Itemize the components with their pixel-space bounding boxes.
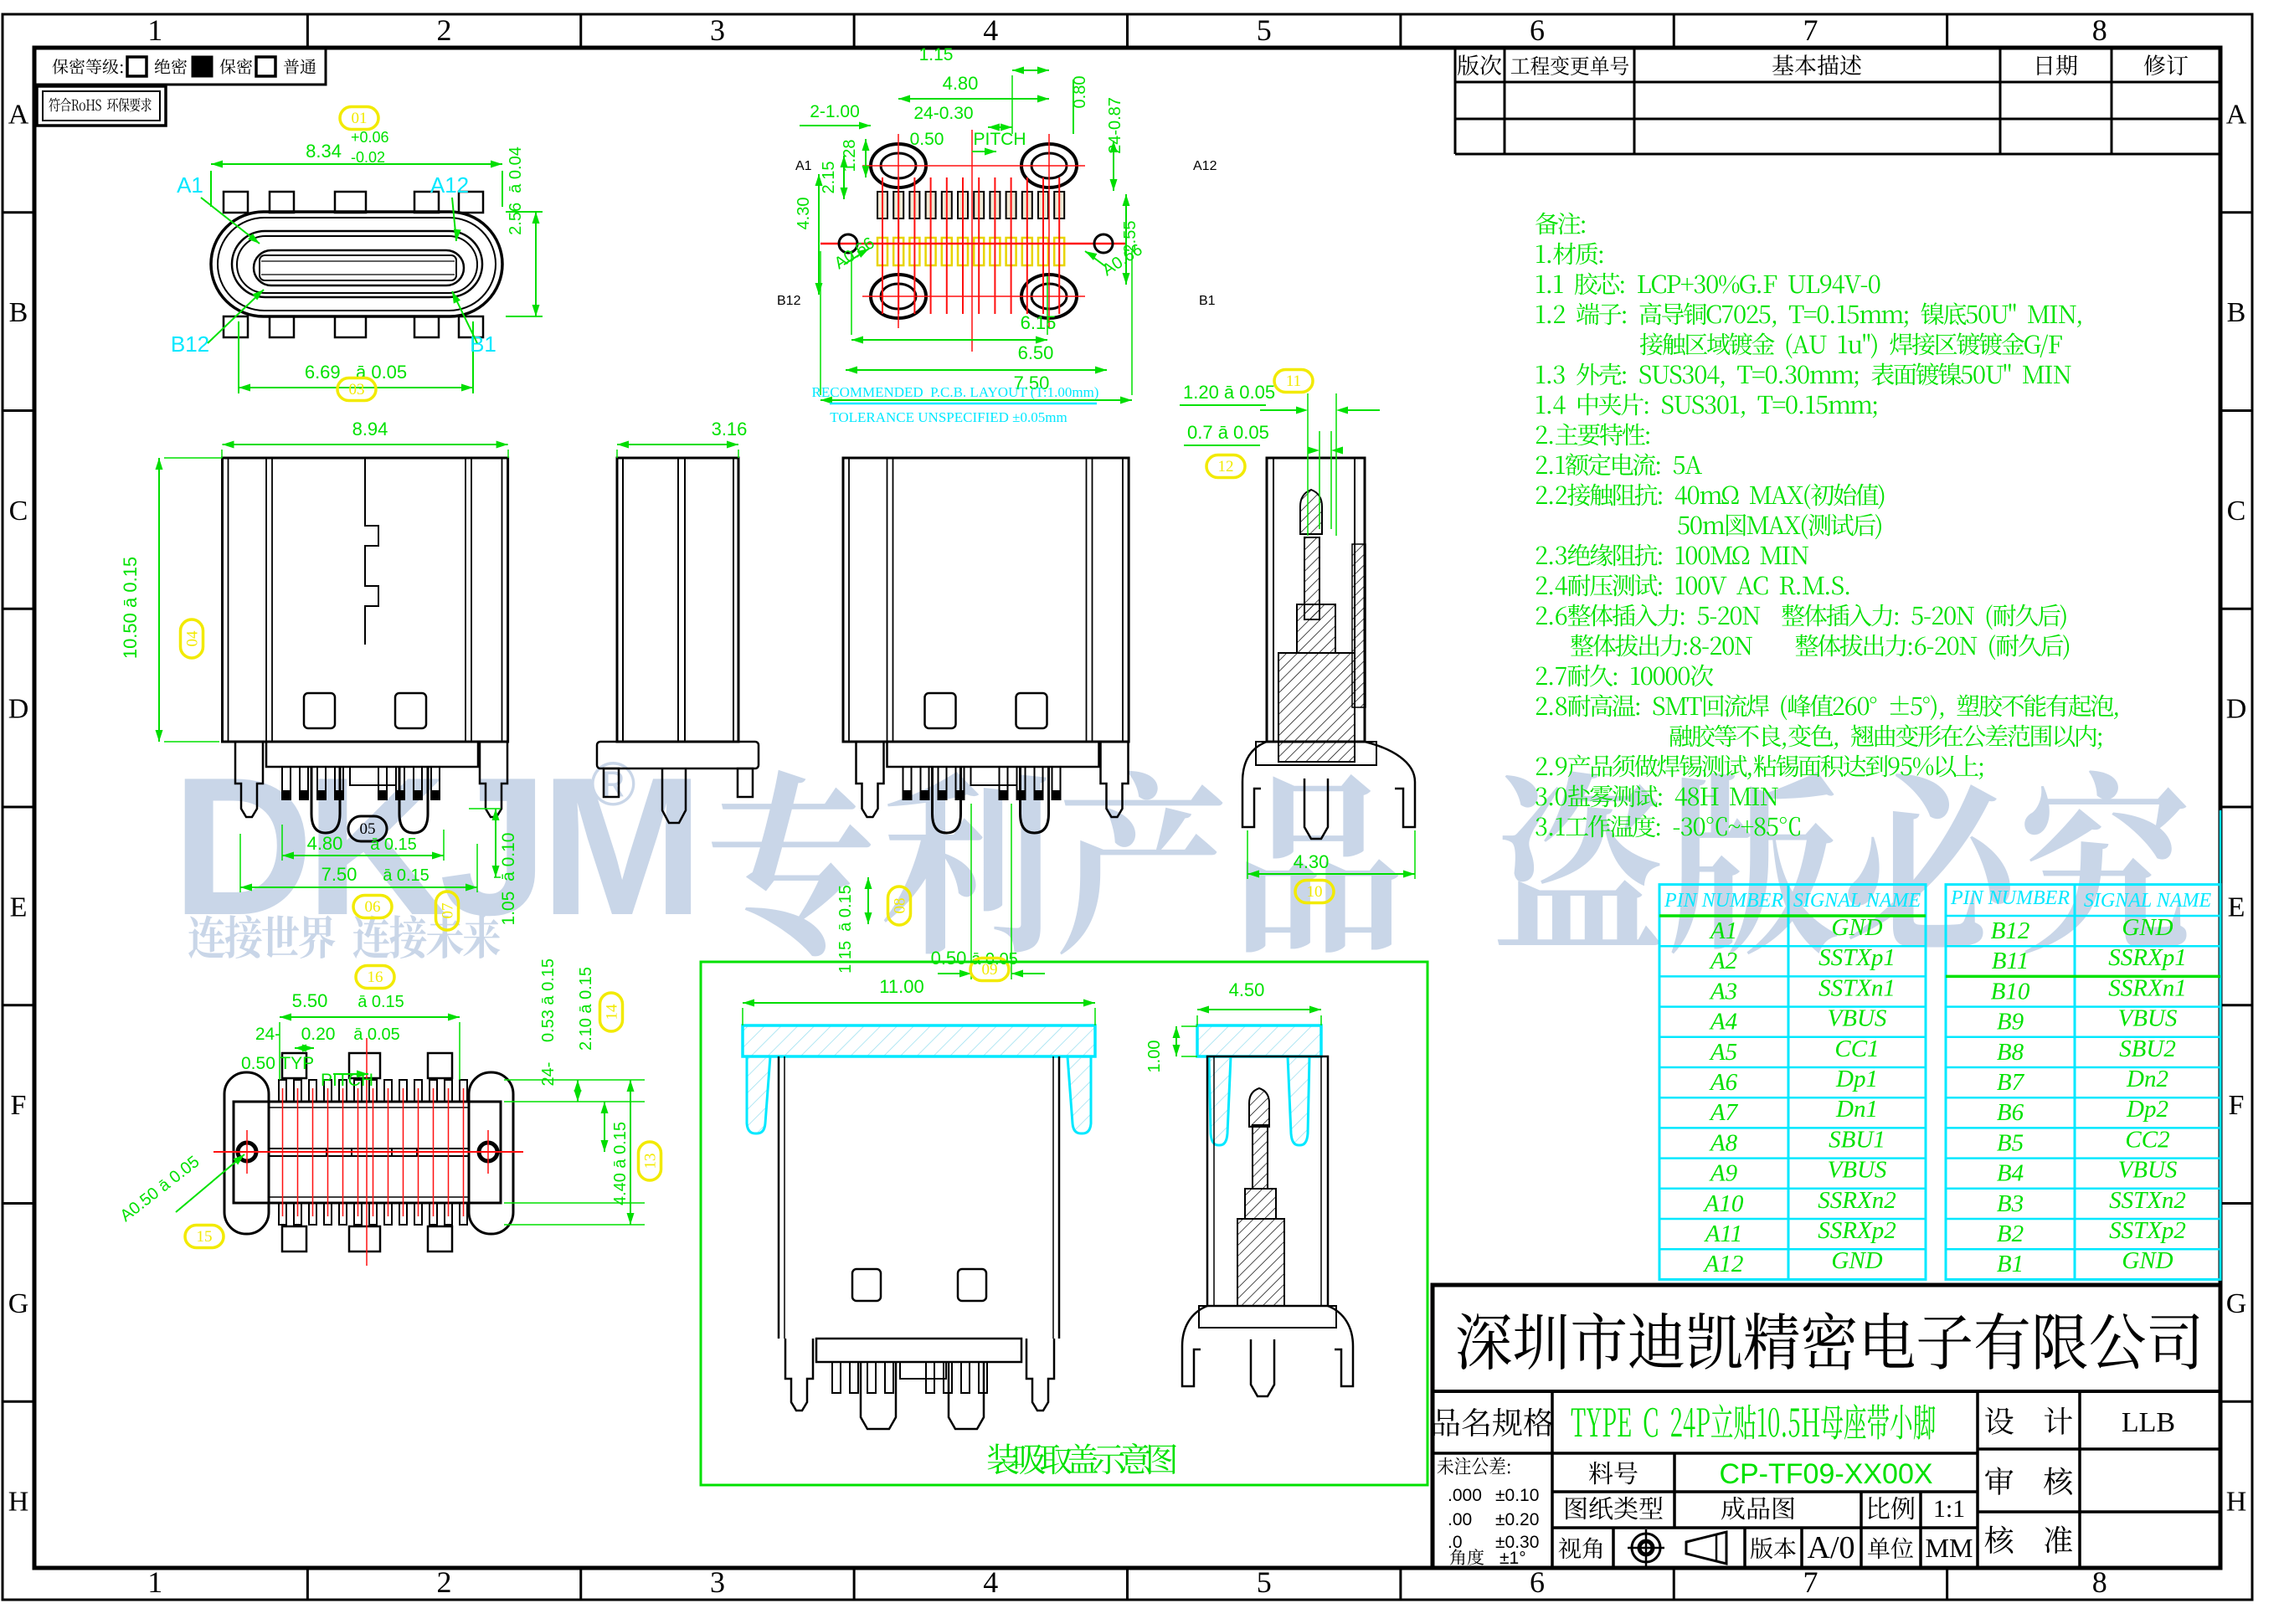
svg-text:A9: A9 [1709,1160,1738,1187]
svg-text:7: 7 [1803,1565,1818,1599]
svg-text:8: 8 [2092,1565,2107,1599]
svg-text:CC2: CC2 [2125,1126,2169,1153]
svg-text:±0.10: ±0.10 [1495,1486,1539,1505]
svg-text:A3: A3 [1709,978,1737,1005]
svg-text:SSRXp1: SSRXp1 [2108,944,2186,971]
svg-text:E: E [10,892,28,922]
svg-text:B8: B8 [1997,1039,2024,1066]
svg-text:12: 12 [1218,458,1234,475]
svg-text:VBUS: VBUS [1828,1005,1887,1032]
svg-text:RECOMMENDED P.C.B. LAYOUT (T:: RECOMMENDED P.C.B. LAYOUT (T:1.00mm) [812,384,1099,400]
svg-text:GND: GND [2122,1247,2173,1274]
svg-text:3: 3 [710,13,725,47]
svg-text:4: 4 [983,1565,998,1599]
svg-text:A5: A5 [1709,1039,1737,1066]
svg-text:24-0.30: 24-0.30 [913,104,973,123]
svg-text:5.50: 5.50 [292,990,328,1011]
svg-text:SIGNAL NAME: SIGNAL NAME [2084,890,2212,912]
svg-text:0.53 ā 0.15: 0.53 ā 0.15 [539,958,558,1042]
svg-text:5: 5 [1257,1565,1272,1599]
svg-text:01: 01 [352,110,368,127]
svg-text:ā 0.15: ā 0.15 [383,866,430,885]
svg-text:6: 6 [1530,13,1545,47]
svg-text:8: 8 [2092,13,2107,47]
svg-text:±0.20: ±0.20 [1495,1510,1539,1529]
svg-text:SSRXp2: SSRXp2 [1818,1217,1896,1244]
svg-text:1.00: 1.00 [1145,1041,1164,1073]
svg-text:ā 0.05: ā 0.05 [353,1025,400,1044]
svg-text:A4: A4 [1709,1009,1737,1036]
svg-text:2.56 ā 0.04: 2.56 ā 0.04 [507,146,525,235]
svg-text:3: 3 [710,1565,725,1599]
svg-text:2: 2 [437,1565,452,1599]
svg-text:A12: A12 [1193,159,1217,173]
svg-text:A1: A1 [1709,917,1737,944]
svg-text:D: D [2226,694,2247,725]
svg-text:B: B [2227,297,2246,328]
svg-text:0.50: 0.50 [910,130,944,149]
svg-text:CP-TF09-XX00X: CP-TF09-XX00X [1719,1458,1932,1490]
svg-text:2-1.00: 2-1.00 [810,102,860,121]
svg-text:1.15 ā 0.15: 1.15 ā 0.15 [836,885,855,974]
svg-text:24-: 24- [255,1025,280,1044]
svg-text:08: 08 [892,898,909,914]
svg-text:0.50: 0.50 [931,948,967,969]
svg-text:B9: B9 [1997,1009,2024,1036]
svg-text:SSTXn2: SSTXn2 [2109,1187,2186,1214]
svg-text:MM: MM [1926,1533,1973,1563]
svg-text:4.80: 4.80 [943,73,979,94]
svg-text:10: 10 [1307,883,1323,901]
svg-text:±1°: ±1° [1500,1549,1526,1568]
svg-text:4.30: 4.30 [1294,851,1330,872]
svg-text:1:1: 1:1 [1933,1495,1965,1523]
svg-text:0.50 TYP: 0.50 TYP [241,1054,314,1073]
svg-text:0.7 ā 0.05: 0.7 ā 0.05 [1187,422,1269,443]
svg-text:04: 04 [184,630,202,647]
svg-text:2: 2 [437,13,452,47]
svg-text:TOLERANCE UNSPECIFIED ±0.05mm: TOLERANCE UNSPECIFIED ±0.05mm [830,409,1067,425]
svg-text:A1: A1 [795,159,812,173]
svg-text:A10: A10 [1703,1190,1744,1217]
svg-text:7.50: 7.50 [322,864,358,885]
svg-text:4: 4 [983,13,998,47]
svg-text:GND: GND [1831,1247,1882,1274]
svg-text:24-0.87: 24-0.87 [1106,97,1124,154]
svg-text:.0: .0 [1448,1533,1463,1552]
svg-text:10.50 ā 0.15: 10.50 ā 0.15 [120,557,141,659]
svg-text:1: 1 [147,1565,162,1599]
svg-text:CC1: CC1 [1834,1036,1879,1062]
svg-text:GND: GND [1831,914,1882,941]
svg-text:B12: B12 [777,294,801,308]
svg-text:6: 6 [1530,1565,1545,1599]
svg-text:SIGNAL NAME: SIGNAL NAME [1793,890,1921,912]
svg-text:A12: A12 [1703,1251,1744,1277]
svg-text:Dp2: Dp2 [2126,1096,2168,1123]
svg-text:PIN NUMBER: PIN NUMBER [1664,890,1783,912]
svg-text:+0.06: +0.06 [351,129,389,146]
svg-text:.000: .000 [1448,1486,1482,1505]
svg-text:09: 09 [982,961,998,979]
svg-text:6.50: 6.50 [1018,342,1054,363]
svg-text:6.15: 6.15 [1021,312,1057,333]
svg-text:16: 16 [368,969,383,986]
svg-text:D: D [8,694,29,725]
svg-text:06: 06 [365,898,381,916]
svg-text:B: B [9,297,28,328]
svg-text:A8: A8 [1709,1129,1738,1156]
svg-text:2.10 ā 0.15: 2.10 ā 0.15 [577,967,595,1051]
svg-text:0.20: 0.20 [301,1025,336,1044]
svg-text:LLB: LLB [2122,1407,2175,1438]
svg-text:3.16: 3.16 [712,419,748,439]
svg-text:2.15: 2.15 [820,162,838,194]
svg-text:H: H [2226,1487,2247,1518]
svg-text:F: F [11,1090,27,1121]
svg-text:8.34: 8.34 [306,141,342,162]
svg-text:A11: A11 [1704,1221,1743,1247]
svg-text:B10: B10 [1991,978,2030,1005]
svg-text:SSRXn1: SSRXn1 [2108,974,2186,1001]
svg-text:SSRXn2: SSRXn2 [1818,1187,1896,1214]
svg-text:G: G [8,1288,29,1319]
svg-text:11.00: 11.00 [879,976,923,997]
svg-text:B11: B11 [1992,948,2029,974]
svg-text:Dp1: Dp1 [1835,1066,1878,1092]
svg-text:B4: B4 [1997,1160,2024,1187]
svg-text:A12: A12 [430,172,469,198]
svg-text:B12: B12 [1991,917,2030,944]
svg-text:VBUS: VBUS [2118,1005,2178,1032]
svg-text:F: F [2229,1090,2245,1121]
svg-text:B1: B1 [1997,1251,2024,1277]
svg-text:G: G [2226,1288,2247,1319]
svg-text:4.30: 4.30 [795,198,813,230]
svg-text:B3: B3 [1997,1190,2024,1217]
svg-text:24-: 24- [539,1062,558,1087]
svg-text:5: 5 [1257,13,1272,47]
svg-text:13: 13 [642,1154,660,1169]
svg-text:E: E [2228,892,2245,922]
svg-text:1.20 ā 0.05: 1.20 ā 0.05 [1183,382,1275,403]
svg-text:ā 0.15: ā 0.15 [370,835,417,854]
svg-text:SBU2: SBU2 [2119,1036,2176,1062]
svg-text:Dn2: Dn2 [2126,1066,2168,1092]
svg-text:C: C [9,496,28,527]
svg-text:B2: B2 [1997,1221,2024,1247]
svg-text:A: A [2226,99,2247,130]
svg-text:14: 14 [604,1004,621,1020]
svg-text:1.05 ā 0.10: 1.05 ā 0.10 [499,833,518,926]
svg-text:07: 07 [440,903,457,919]
svg-text:SSTXn1: SSTXn1 [1818,974,1896,1001]
svg-text:GND: GND [2122,914,2173,941]
svg-text:SSTXp2: SSTXp2 [2109,1217,2186,1244]
svg-text:7: 7 [1803,13,1818,47]
svg-text:H: H [8,1487,29,1518]
svg-text:B7: B7 [1997,1069,2025,1096]
svg-text:PIN NUMBER: PIN NUMBER [1950,887,2070,909]
svg-text:1: 1 [147,13,162,47]
svg-text:PITCH: PITCH [974,130,1026,149]
svg-text:ā 0.15: ā 0.15 [358,993,404,1011]
svg-text:03: 03 [349,381,365,398]
svg-text:4.50: 4.50 [1229,979,1265,1000]
svg-text:B6: B6 [1997,1099,2024,1126]
svg-text:1.15: 1.15 [919,45,954,64]
svg-text:A7: A7 [1709,1099,1739,1126]
svg-text:-0.02: -0.02 [351,149,385,166]
svg-text:4.40 ā 0.15: 4.40 ā 0.15 [611,1122,630,1205]
svg-text:4.80: 4.80 [307,833,343,854]
svg-text:A: A [8,99,29,130]
svg-text:8.94: 8.94 [352,419,388,439]
svg-text:15: 15 [197,1228,213,1246]
svg-text:C: C [2227,496,2246,527]
svg-text:SSTXp1: SSTXp1 [1818,944,1896,971]
svg-text:.00: .00 [1448,1510,1472,1529]
svg-text:SBU1: SBU1 [1829,1126,1885,1153]
svg-text:B12: B12 [171,331,209,357]
svg-text:Dn1: Dn1 [1835,1096,1878,1123]
svg-text:VBUS: VBUS [2118,1157,2178,1184]
svg-text:VBUS: VBUS [1828,1157,1887,1184]
svg-text:A1: A1 [177,172,203,198]
svg-text:A2: A2 [1709,948,1737,974]
svg-text:11: 11 [1286,373,1301,390]
svg-text:B1: B1 [1199,294,1216,308]
svg-text:A6: A6 [1709,1069,1738,1096]
svg-text:A/0: A/0 [1808,1530,1855,1565]
svg-text:B5: B5 [1997,1129,2024,1156]
